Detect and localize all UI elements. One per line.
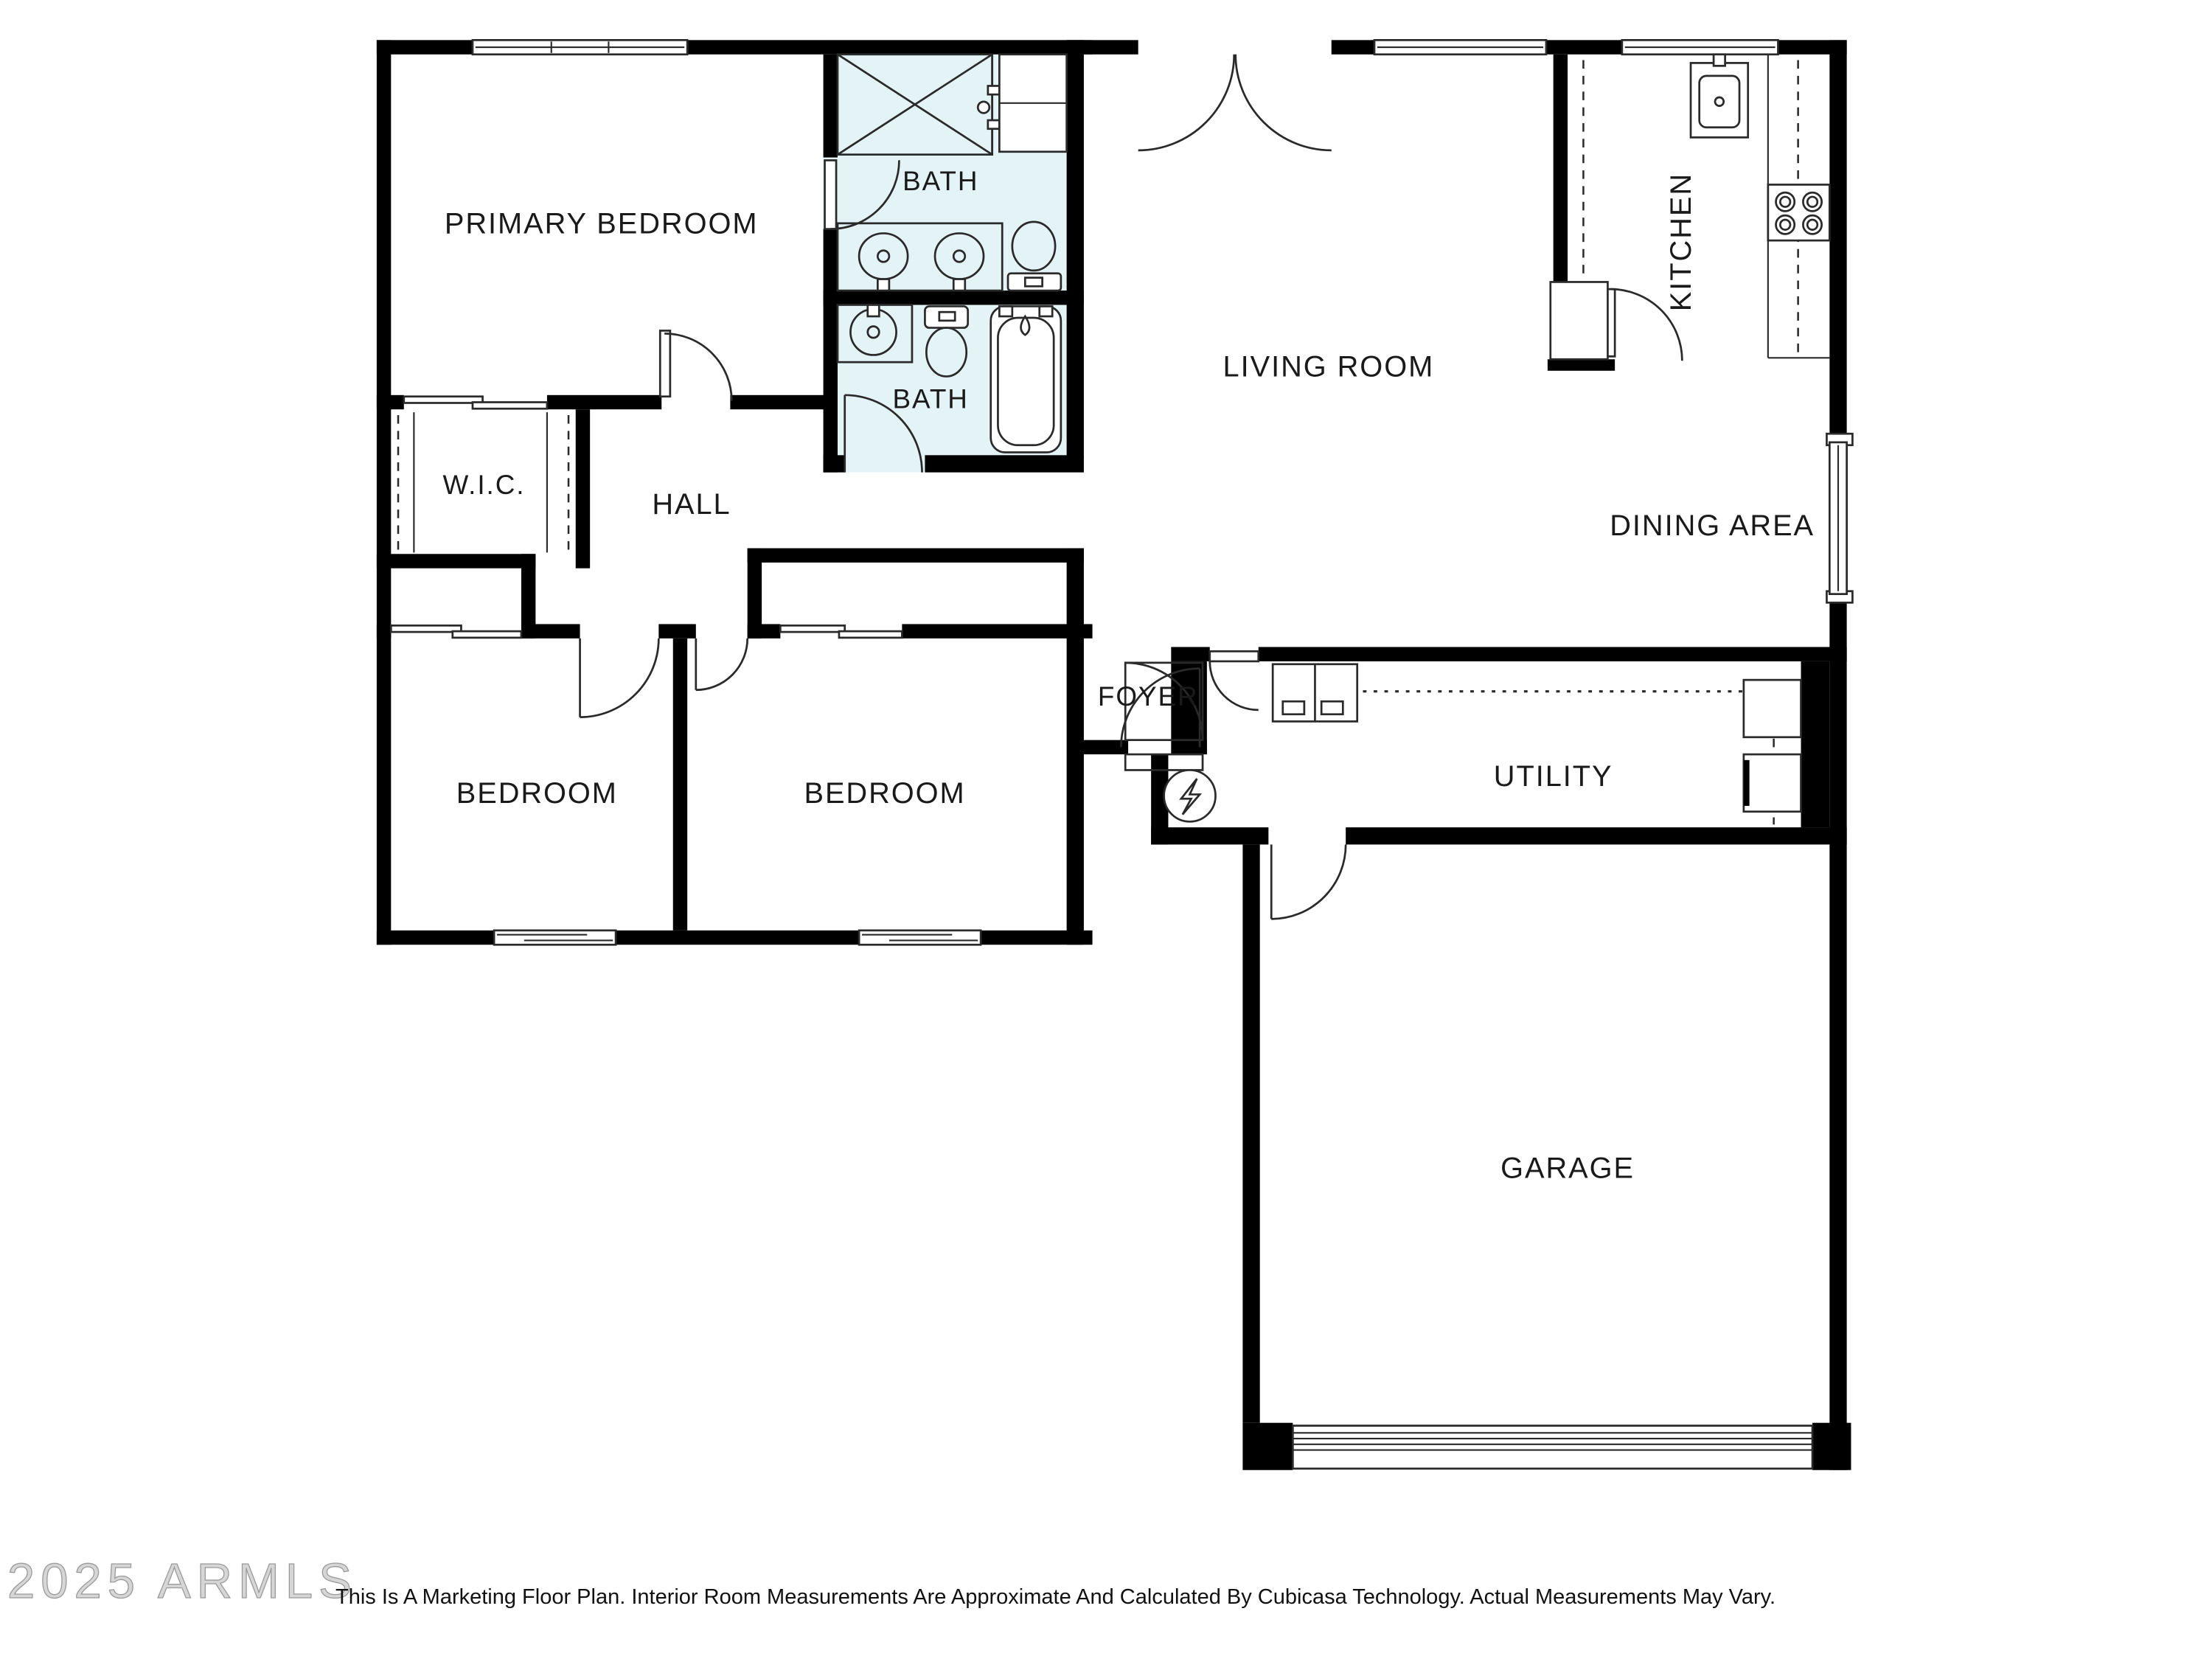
room-label-dining-area: DINING AREA [1610,509,1815,542]
room-label-foyer: FOYER [1098,681,1199,712]
bathtub-icon [991,306,1061,452]
disclaimer-text: This Is A Marketing Floor Plan. Interior… [335,1585,1775,1610]
window-dining [1826,434,1852,602]
stove-icon [1768,184,1829,240]
linen-closet [999,55,1066,152]
door-garage-entry [1271,844,1346,919]
window-living-room [1374,40,1546,54]
cabinet-hinge-bar [1744,760,1750,806]
garage-door [1293,1426,1812,1469]
room-label-bedroom-middle: BEDROOM [804,777,965,810]
floor-plan-drawing: PRIMARY BEDROOM BATH BATH W.I.C. HALL BE… [0,0,2212,1659]
refrigerator-icon [1551,282,1608,359]
double-door-living-room [1138,55,1332,150]
door-bedroom-left [580,639,659,717]
floor-plan-page: PRIMARY BEDROOM BATH BATH W.I.C. HALL BE… [0,0,2212,1659]
room-label-bedroom-left: BEDROOM [456,777,618,810]
walls [377,40,1851,1470]
room-label-primary-bedroom: PRIMARY BEDROOM [445,207,759,240]
room-label-wic: W.I.C. [442,470,525,500]
window-bedroom-middle [859,931,981,945]
closet-doors-bedroom-middle [780,625,902,638]
utility-cabinet-upper [1744,680,1801,737]
room-label-bath-hall: BATH [892,383,968,414]
utility-cabinet-lower [1744,754,1801,812]
utility-fixtures [1164,664,1801,824]
window-bedroom-left [494,931,616,945]
door-primary-bedroom [660,330,731,400]
window-primary-bedroom [473,40,687,54]
door-bedroom-middle [696,639,748,690]
room-label-bath-primary: BATH [902,166,978,196]
window-kitchen [1622,40,1778,54]
washer-dryer-icon [1273,664,1357,722]
door-utility [1210,651,1259,710]
kitchen-sink-icon [1691,55,1748,138]
watermark: 2025 ARMLS [7,1553,358,1610]
closet-doors-bedroom-left [391,625,521,638]
room-label-kitchen: KITCHEN [1665,173,1697,311]
room-label-hall: HALL [652,488,731,521]
water-heater-icon [1164,770,1216,821]
wic-sliding-doors [404,397,547,409]
room-label-living-room: LIVING ROOM [1223,351,1435,383]
room-label-garage: GARAGE [1500,1152,1635,1185]
room-label-utility: UTILITY [1494,760,1613,793]
